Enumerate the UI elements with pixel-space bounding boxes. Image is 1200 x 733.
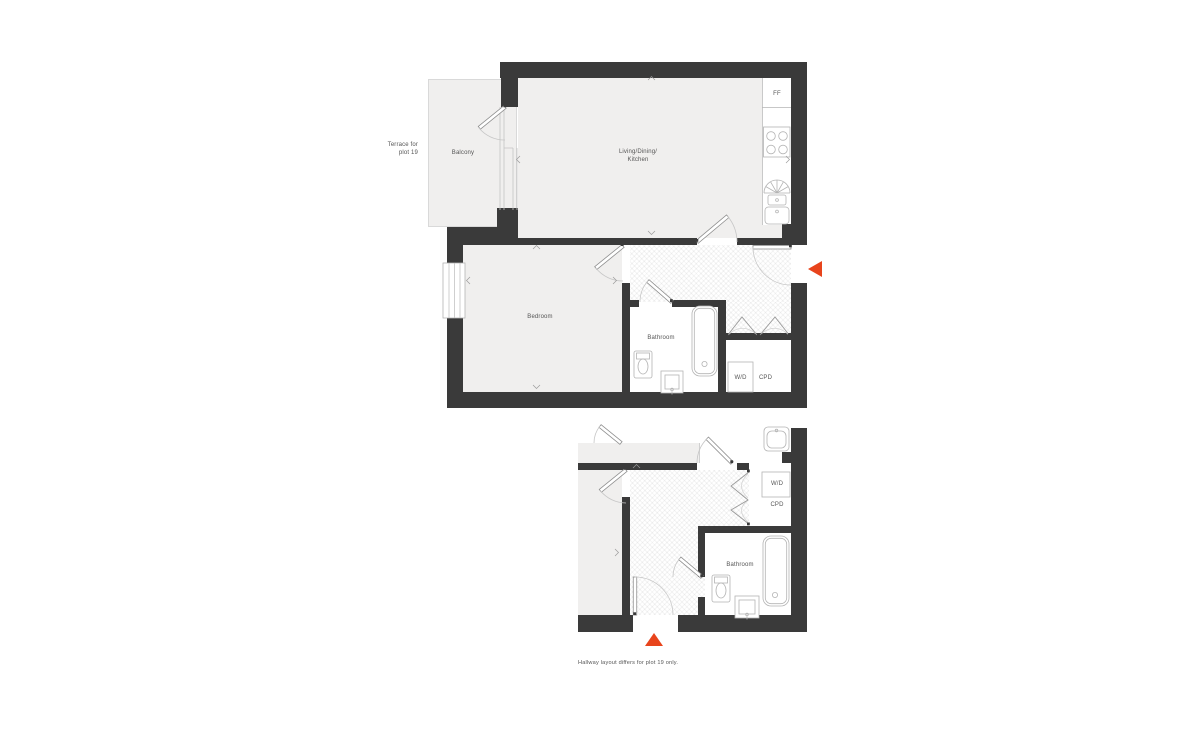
wall-segment — [447, 318, 463, 392]
hallway-floor-hatch — [630, 245, 791, 302]
cupboard-label: CPD — [753, 375, 778, 383]
living-dining-kitchen-label: Living/Dining/ Kitchen — [555, 149, 721, 164]
wall-segment — [791, 283, 807, 408]
wall-segment — [698, 526, 791, 533]
wall-segment — [578, 463, 697, 470]
wall-segment — [501, 62, 518, 107]
terrace-label: Terrace for plot 19 — [330, 142, 418, 157]
wall-segment — [447, 392, 807, 408]
wall-segment — [782, 452, 791, 463]
cupboard-label: CPD — [764, 502, 790, 510]
entrance-arrow-up-icon — [645, 633, 663, 646]
living-label-line1: Living/Dining/ — [555, 149, 721, 157]
fridge-freezer-label: FF — [765, 91, 789, 99]
wall-segment — [578, 615, 633, 632]
wall-segment — [698, 597, 705, 615]
balcony-label: Balcony — [428, 150, 498, 158]
wall-segment — [737, 238, 791, 245]
bathroom-label: Bathroom — [630, 335, 692, 343]
hallway-floor-hatch — [726, 302, 791, 333]
bedroom-window — [443, 263, 465, 318]
living-label-line2: Kitchen — [555, 157, 721, 165]
terrace-label-line1: Terrace for — [330, 142, 418, 150]
kitchen-sink — [764, 427, 789, 451]
floorplan-canvas: Terrace for plot 19 Balcony Living/Dinin… — [0, 0, 1200, 733]
bathroom-room — [705, 533, 791, 615]
kitchen-counter-strip — [762, 78, 791, 225]
utility-closet-room — [726, 340, 791, 392]
wall-segment — [791, 78, 807, 245]
entrance-arrow-left-icon — [808, 261, 822, 277]
utility-closet-room — [749, 470, 791, 526]
washer-dryer-label: W/D — [728, 375, 753, 383]
bathroom-label: Bathroom — [710, 562, 770, 570]
wall-segment — [698, 533, 705, 577]
bedroom-label: Bedroom — [500, 314, 580, 322]
bathroom-room — [630, 307, 718, 392]
cutoff-door — [594, 425, 622, 445]
wall-segment — [622, 497, 630, 615]
terrace-label-line2: plot 19 — [330, 150, 418, 158]
bedroom-partial-room — [578, 470, 622, 615]
plan-caption: Hallway layout differs for plot 19 only. — [578, 660, 678, 666]
wall-segment — [726, 333, 791, 340]
wall-segment — [447, 238, 697, 245]
wall-segment — [718, 300, 726, 392]
wall-segment — [737, 463, 749, 470]
kitchen-door — [697, 437, 733, 464]
wall-segment — [622, 300, 639, 307]
wall-segment — [678, 615, 807, 632]
wall-segment — [791, 428, 807, 632]
washer-dryer-label: W/D — [764, 481, 790, 489]
kitchen-partial-room — [578, 443, 700, 463]
wall-segment — [500, 62, 807, 78]
